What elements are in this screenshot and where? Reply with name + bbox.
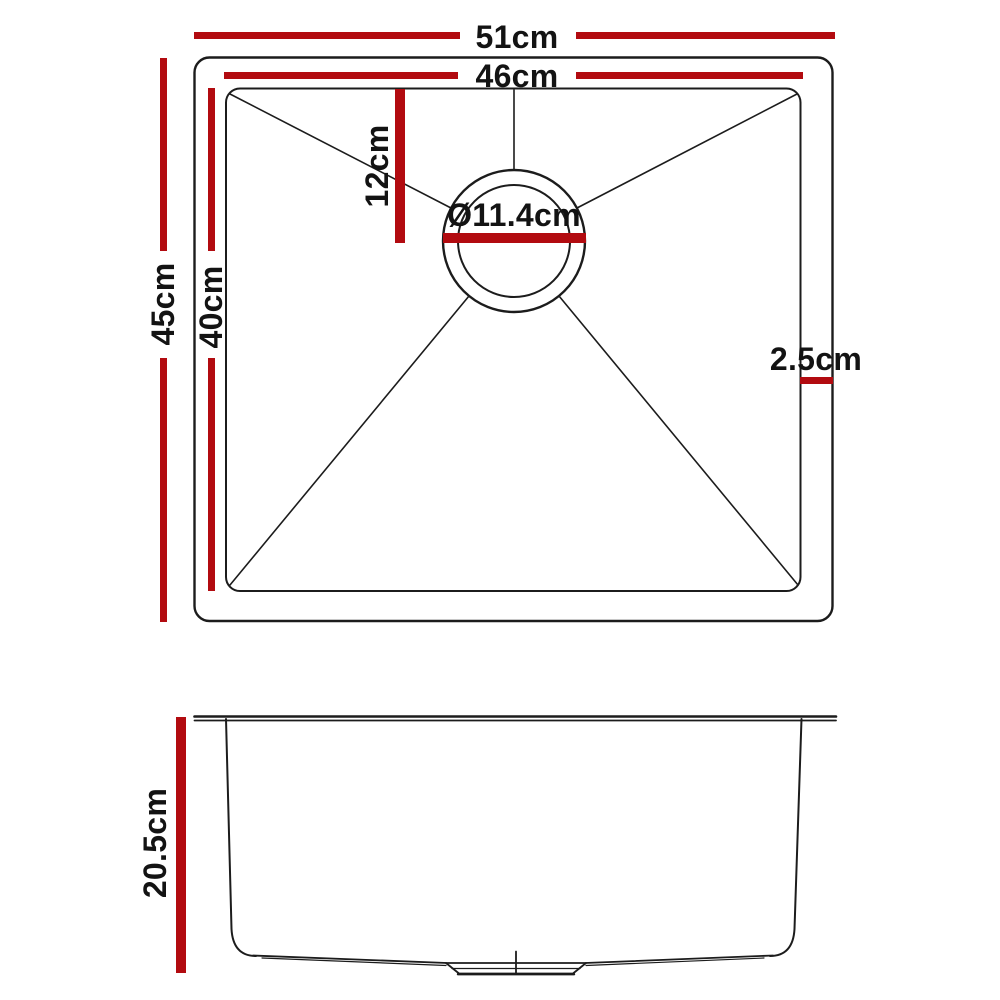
dim-bar-bowl-height (176, 717, 186, 973)
dim-label-rim-width: 2.5cm (770, 343, 862, 375)
dim-label-bowl-depth: 40cm (195, 265, 227, 348)
dim-bar-bowl-width-left (224, 72, 458, 80)
dim-label-overall-depth: 45cm (147, 262, 179, 345)
dim-label-drain-offset: 12cm (361, 124, 393, 207)
dim-bar-drain-offset (395, 89, 405, 243)
dim-label-overall-width: 51cm (475, 21, 558, 53)
dim-bar-drain-diameter (443, 233, 586, 243)
dim-bar-rim-width (800, 377, 833, 384)
dim-label-bowl-height: 20.5cm (139, 788, 171, 898)
dim-bar-overall-depth-top (160, 58, 168, 251)
sink-dimension-diagram: 51cm 46cm 45cm 40cm 12cm Ø11.4cm 2.5cm 2… (0, 0, 1000, 1000)
dim-label-drain-diameter: Ø11.4cm (447, 199, 581, 231)
dim-bar-bowl-width-right (576, 72, 803, 80)
top-view-drawing (195, 58, 833, 622)
dim-bar-overall-width-left (194, 32, 460, 40)
dim-bar-bowl-depth-top (208, 88, 216, 251)
side-view-drawing (195, 717, 837, 975)
dim-bar-overall-depth-bottom (160, 358, 168, 622)
dim-bar-bowl-depth-bottom (208, 358, 216, 591)
dim-label-bowl-width: 46cm (475, 60, 558, 92)
dim-bar-overall-width-right (576, 32, 835, 40)
